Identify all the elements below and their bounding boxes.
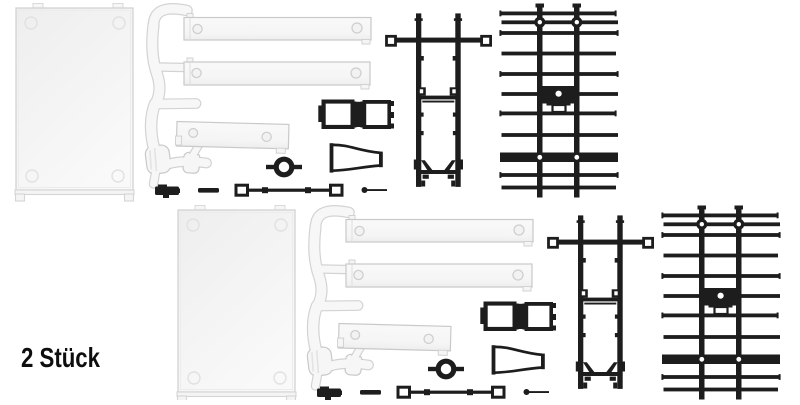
svg-text:2 Stück: 2 Stück bbox=[21, 342, 101, 373]
